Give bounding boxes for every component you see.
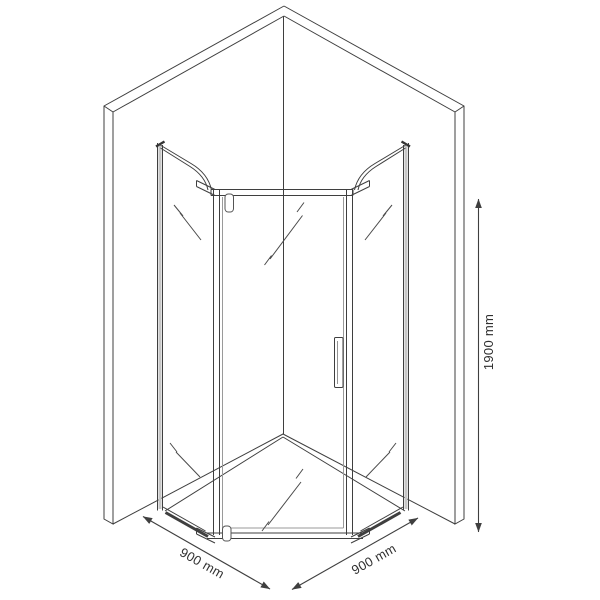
left-panel-top-edge	[159, 144, 212, 190]
left-wall-outline	[104, 6, 284, 524]
dimension-arrow-width-left	[143, 517, 270, 590]
reflection-mark-right-upper	[365, 205, 392, 240]
left-glass-panel	[156, 142, 220, 537]
right-glass-panel	[347, 142, 411, 537]
reflection-mark-door-bottom	[262, 469, 303, 531]
right-panel-top-edge	[355, 144, 408, 190]
dimension-label-width-right: 900 mm	[349, 541, 399, 578]
left-panel-glass-bottom	[163, 507, 206, 531]
left-panel-front-frame	[214, 189, 220, 535]
reflection-mark-left-lower	[170, 443, 200, 477]
drawing-canvas: 900 mm 900 mm 1900 mm	[0, 0, 600, 600]
shower-enclosure-diagram: 900 mm 900 mm 1900 mm	[0, 0, 600, 600]
reflection-mark-door-center	[265, 203, 305, 266]
door-hinge-top	[225, 194, 234, 212]
dimension-label-height: 1900 mm	[481, 314, 496, 370]
door-handle	[335, 338, 344, 388]
dimension-arrow-width-right	[292, 518, 418, 590]
right-wall-outline	[284, 6, 464, 524]
right-panel-glass-bottom	[361, 507, 404, 531]
reflection-mark-right-lower	[366, 443, 396, 477]
right-panel-front-frame	[347, 189, 353, 535]
reflection-mark-left-upper	[174, 205, 201, 240]
door-hinge-bottom	[223, 526, 232, 541]
right-panel-bottom-sill	[358, 513, 401, 537]
